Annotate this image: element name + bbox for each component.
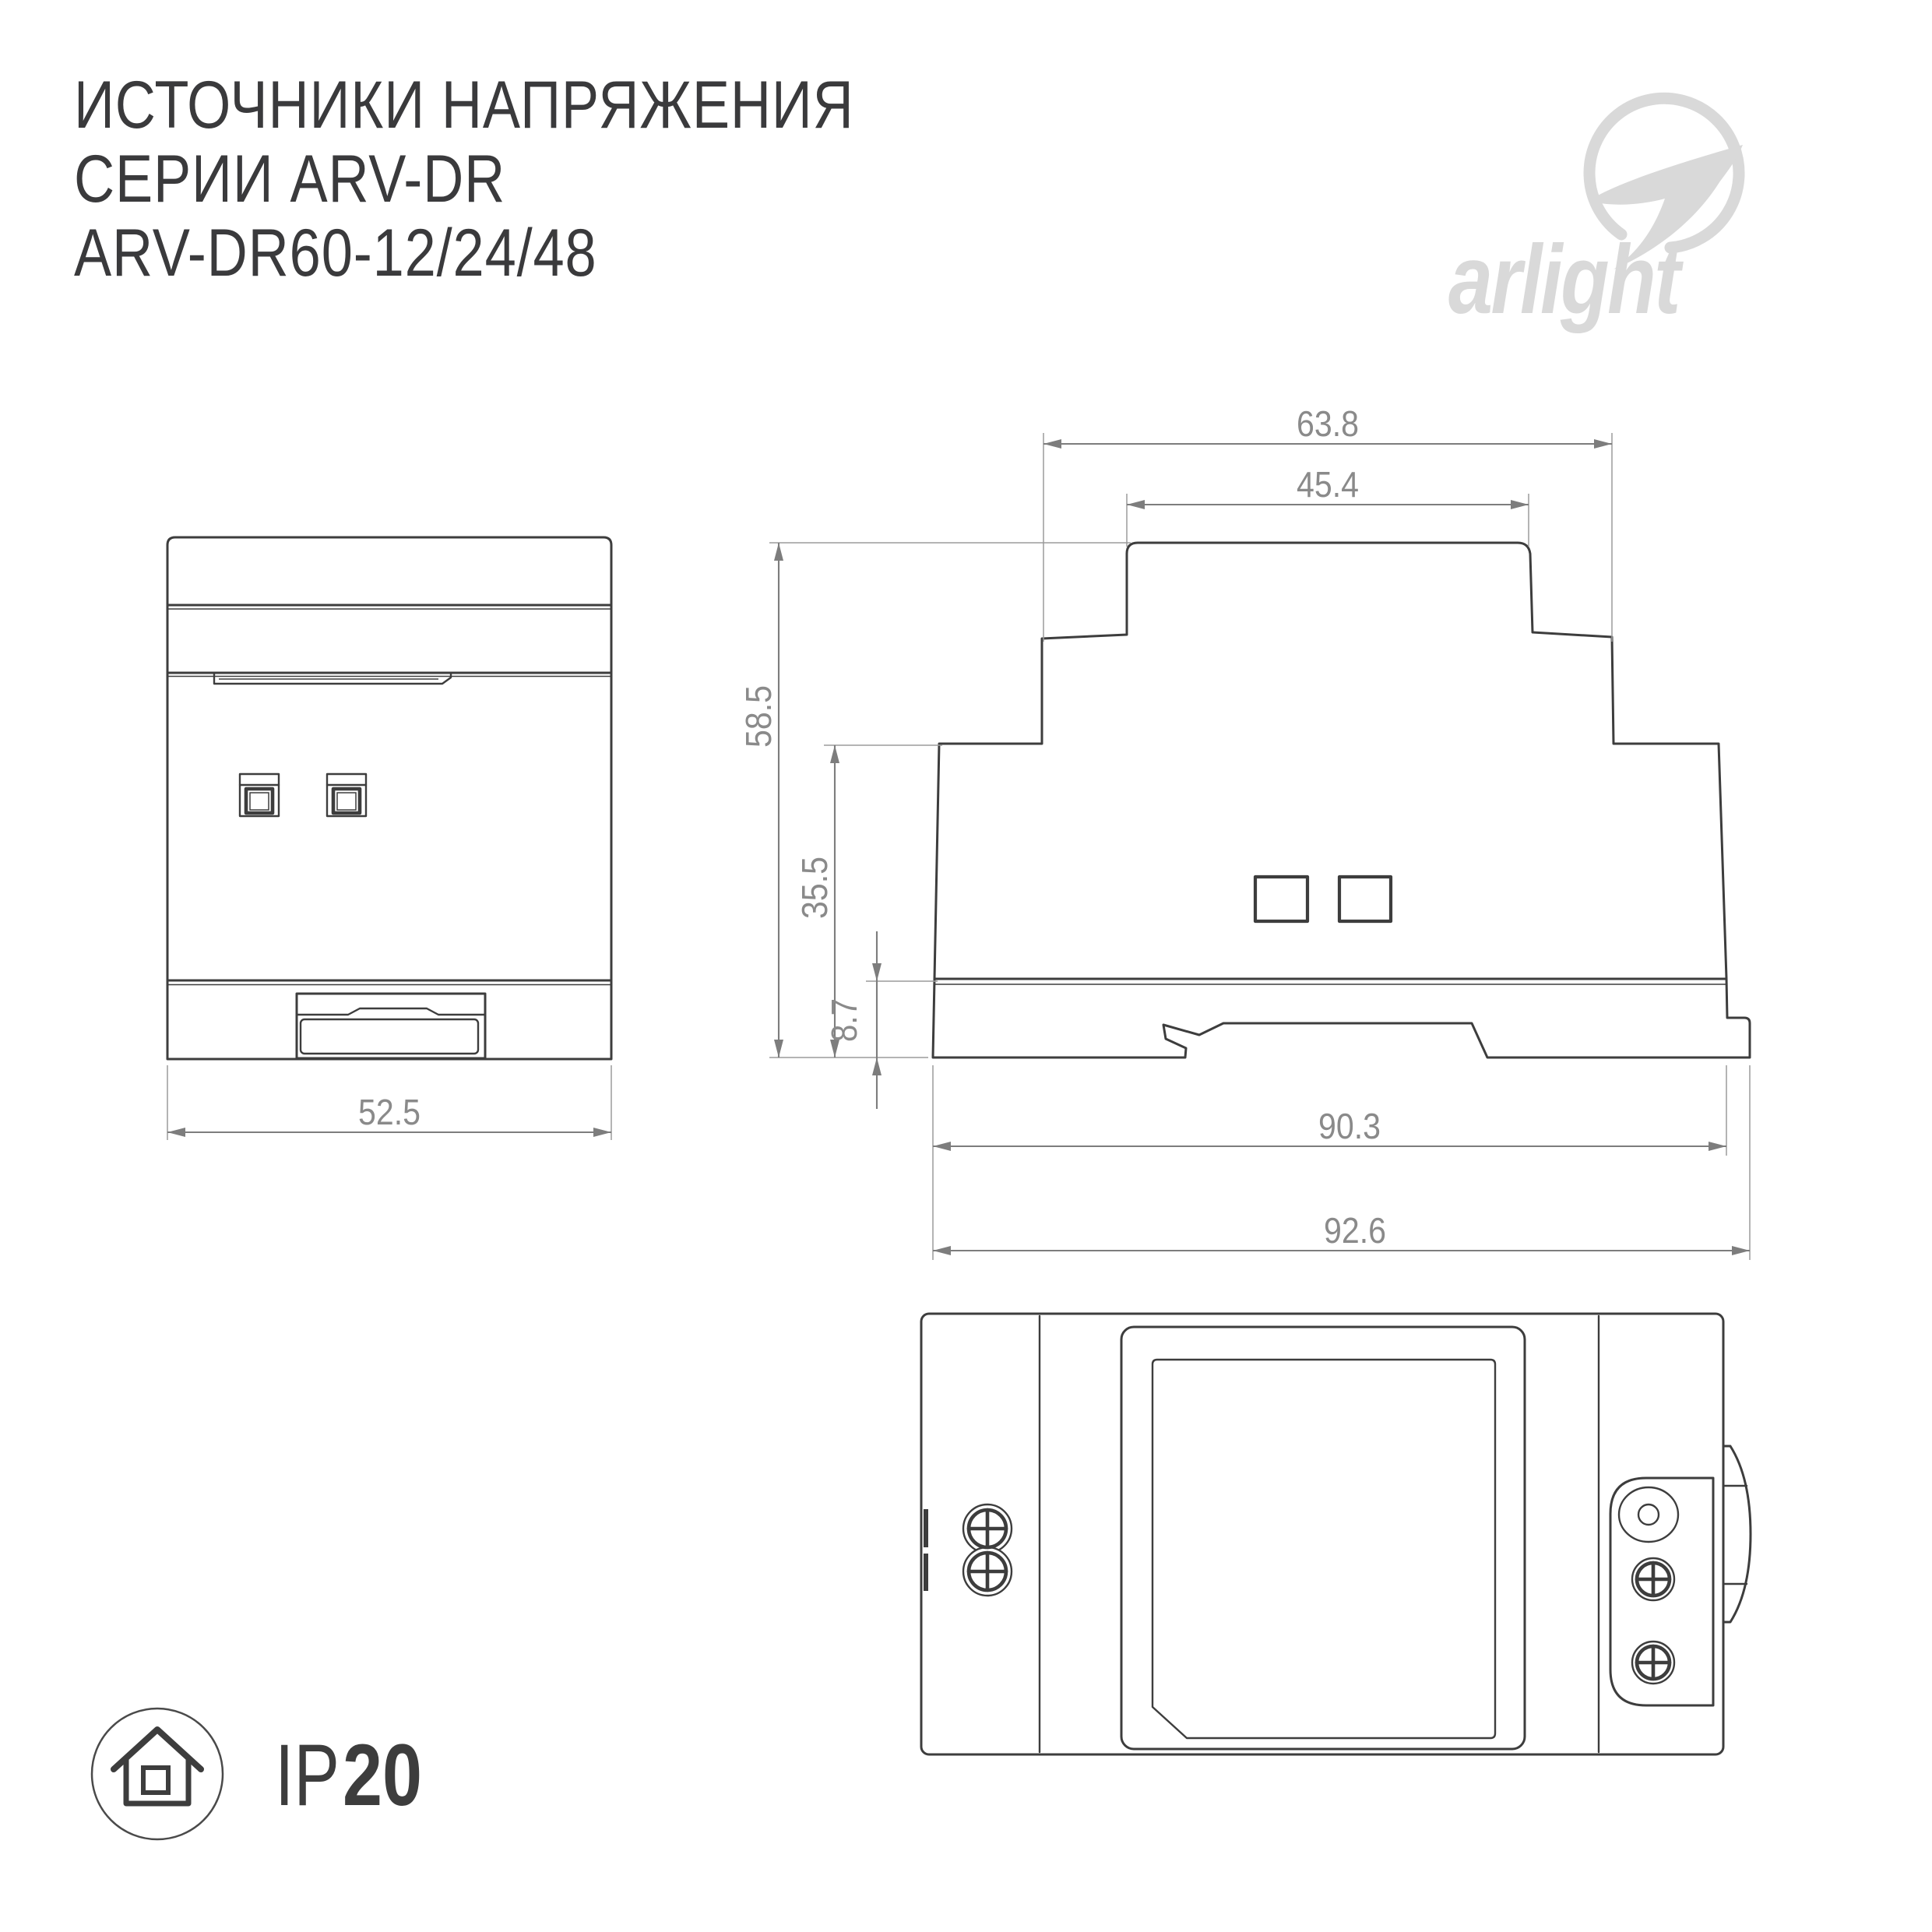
front-terminal-right: [327, 774, 366, 816]
dim-label-90-3: 90.3: [1318, 1106, 1381, 1146]
dim-side-top-width: 63.8: [1043, 403, 1612, 642]
bottom-recess-outer: [1121, 1327, 1525, 1749]
front-din-clip: [297, 994, 485, 1058]
bottom-screw-mid: [1632, 1558, 1674, 1600]
bottom-terminal-panel: [1610, 1478, 1713, 1705]
dim-label-52-5: 52.5: [358, 1092, 421, 1132]
side-window-left: [1255, 877, 1307, 921]
house-in-circle-icon: [114, 1730, 201, 1804]
dim-label-8-7: 8.7: [824, 998, 864, 1042]
technical-drawing: 52.5 63.8: [0, 0, 1932, 1932]
bottom-edge-slot-1: [924, 1509, 928, 1547]
side-window-right: [1339, 877, 1391, 921]
dim-side-body-height: 35.5: [794, 745, 942, 1057]
dim-side-foot-height: 8.7: [824, 931, 938, 1109]
ip-rating-label: IP20: [275, 1726, 422, 1824]
side-view: 63.8 45.4 58.5: [738, 403, 1750, 1260]
dim-front-width: 52.5: [167, 1065, 611, 1140]
bottom-edge-slot-2: [924, 1554, 928, 1591]
dim-side-shoulder-width: 45.4: [1127, 464, 1529, 547]
bottom-outline: [921, 1314, 1723, 1754]
bottom-screws-left: [963, 1504, 1012, 1596]
ip-prefix: IP: [275, 1726, 340, 1824]
bottom-screw-low: [1632, 1642, 1674, 1684]
bottom-recess-inner: [1153, 1360, 1495, 1738]
dim-label-35-5: 35.5: [794, 857, 835, 919]
dim-label-63-8: 63.8: [1297, 403, 1359, 444]
arlight-swoosh-icon: [1589, 98, 1743, 269]
dim-label-58-5: 58.5: [738, 685, 779, 748]
dim-label-92-6: 92.6: [1324, 1210, 1386, 1251]
front-view: 52.5: [167, 537, 611, 1140]
front-terminal-left: [240, 774, 279, 816]
ip-value: 20: [343, 1726, 422, 1824]
ip20-badge: IP20: [92, 1709, 422, 1839]
bottom-clip-tab: [1723, 1446, 1751, 1622]
datasheet-page: ИСТОЧНИКИ НАПРЯЖЕНИЯ СЕРИИ ARV-DR ARV-DR…: [0, 0, 1932, 1932]
front-groove: [214, 673, 451, 684]
bottom-view: [921, 1314, 1751, 1754]
side-profile: [933, 543, 1750, 1057]
dim-side-overall-width: 92.6: [933, 1065, 1750, 1260]
dim-label-45-4: 45.4: [1297, 464, 1359, 505]
